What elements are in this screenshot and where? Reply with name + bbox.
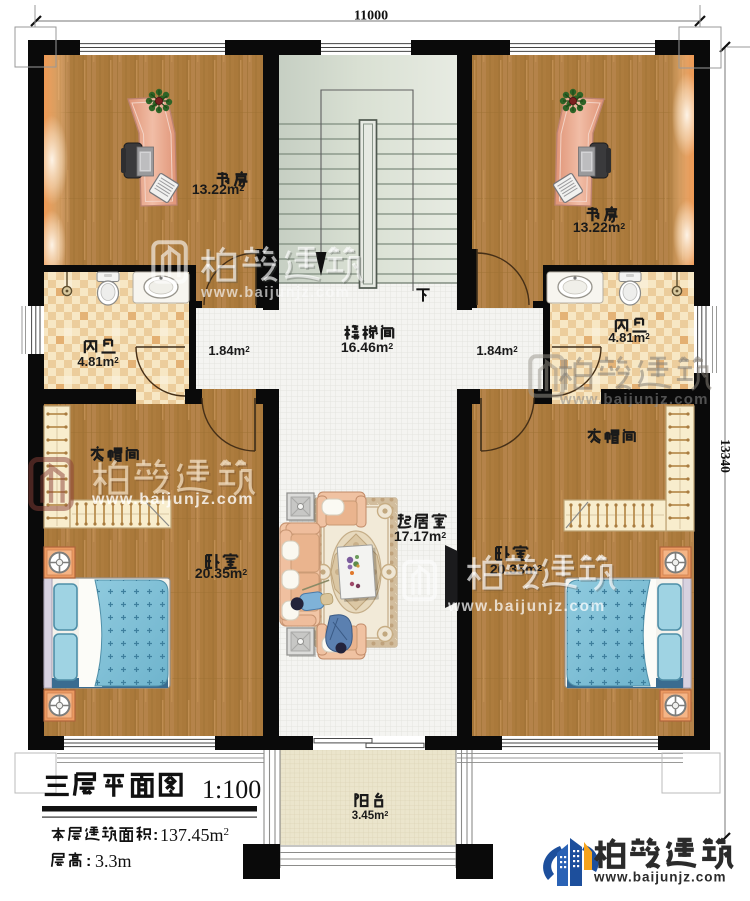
svg-text:www.baijunjz.com: www.baijunjz.com [200, 285, 350, 301]
svg-text:1.84m2: 1.84m2 [208, 343, 250, 358]
svg-text:www.baijunjz.com: www.baijunjz.com [593, 870, 727, 885]
svg-text:www.baijunjz.com: www.baijunjz.com [91, 491, 254, 508]
svg-text:www.baijunjz.com: www.baijunjz.com [559, 391, 709, 408]
svg-text:11000: 11000 [354, 9, 388, 24]
svg-text:www.baijunjz.com: www.baijunjz.com [447, 598, 606, 615]
svg-text:16.46m2: 16.46m2 [341, 339, 393, 355]
svg-text:4.81m2: 4.81m2 [77, 354, 119, 369]
svg-text:1.84m2: 1.84m2 [476, 343, 518, 358]
svg-text:13340: 13340 [718, 439, 733, 473]
svg-text::: : [153, 827, 158, 844]
svg-text:1:100: 1:100 [202, 775, 261, 804]
svg-text:3.3m: 3.3m [95, 851, 132, 871]
svg-text:20.35m2: 20.35m2 [195, 565, 247, 581]
svg-text:137.45m2: 137.45m2 [160, 825, 229, 845]
svg-text:4.81m2: 4.81m2 [608, 330, 650, 345]
svg-text:13.22m2: 13.22m2 [573, 219, 625, 235]
svg-text:17.17m2: 17.17m2 [394, 528, 446, 544]
svg-text:13.22m2: 13.22m2 [192, 181, 244, 197]
svg-text:3.45m2: 3.45m2 [352, 810, 389, 822]
svg-text::: : [86, 853, 91, 870]
